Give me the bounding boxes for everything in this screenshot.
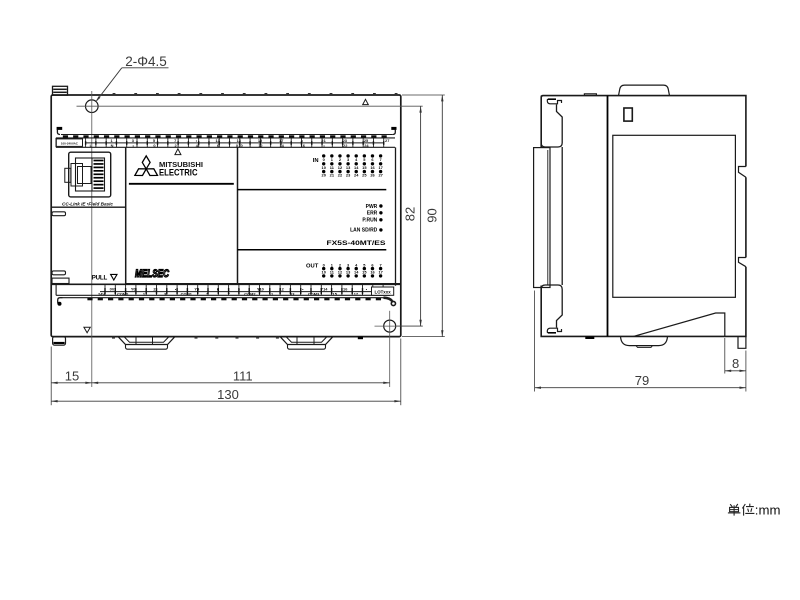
svg-text:COM0: COM0	[117, 292, 128, 297]
svg-text:14: 14	[354, 165, 359, 170]
svg-text:6: 6	[371, 157, 374, 162]
svg-text:22: 22	[338, 173, 343, 178]
svg-text:LOTxxx: LOTxxx	[375, 290, 392, 295]
svg-text:16: 16	[370, 165, 375, 170]
svg-text:17: 17	[378, 165, 382, 170]
svg-text:79: 79	[635, 373, 649, 388]
svg-text:Y0: Y0	[131, 286, 136, 291]
svg-text:10: 10	[322, 270, 326, 275]
svg-text:IN: IN	[313, 158, 319, 164]
svg-text:15: 15	[362, 270, 367, 275]
svg-text:6: 6	[371, 262, 374, 267]
svg-text:130: 130	[217, 387, 239, 402]
svg-text:11: 11	[269, 292, 274, 297]
svg-text:4: 4	[355, 157, 358, 162]
svg-text:COM1: COM1	[181, 292, 193, 297]
svg-text:13: 13	[346, 165, 351, 170]
svg-text:26: 26	[370, 173, 375, 178]
svg-text:15: 15	[362, 165, 367, 170]
svg-text:24: 24	[354, 173, 359, 178]
svg-text:1: 1	[331, 262, 334, 267]
svg-text:16: 16	[343, 286, 348, 291]
svg-text:16: 16	[370, 270, 375, 275]
svg-text:23: 23	[346, 173, 351, 178]
svg-text:ELECTRIC: ELECTRIC	[159, 168, 198, 178]
svg-text:12: 12	[338, 165, 343, 170]
svg-text:11: 11	[330, 165, 335, 170]
svg-text:12: 12	[279, 286, 284, 291]
svg-text:15: 15	[333, 292, 338, 297]
svg-text:100-240VAC: 100-240VAC	[61, 142, 79, 146]
svg-text:27: 27	[378, 173, 382, 178]
svg-text:PULL: PULL	[92, 275, 108, 282]
svg-text:P.RUN: P.RUN	[362, 218, 377, 224]
svg-text:3: 3	[347, 262, 350, 267]
svg-text:21: 21	[330, 173, 335, 178]
svg-text:MELSEC: MELSEC	[135, 268, 169, 280]
svg-text:0V: 0V	[110, 286, 115, 291]
svg-text:•: •	[302, 286, 304, 291]
svg-text:2: 2	[339, 157, 342, 162]
svg-text:7: 7	[380, 262, 382, 267]
svg-text:2: 2	[339, 262, 342, 267]
svg-text:111: 111	[233, 368, 253, 383]
svg-text:CC-Link IE •Field Basic: CC-Link IE •Field Basic	[62, 201, 114, 206]
svg-text:N: N	[111, 143, 114, 148]
svg-text:1: 1	[143, 292, 146, 297]
svg-text:•: •	[239, 286, 241, 291]
svg-text:Y4: Y4	[194, 286, 200, 291]
svg-text:0: 0	[323, 262, 325, 267]
svg-text:14: 14	[354, 270, 359, 275]
svg-text:FX5S-40MT/ES: FX5S-40MT/ES	[327, 241, 386, 247]
svg-text:OUT: OUT	[306, 263, 319, 269]
svg-text:5: 5	[363, 157, 366, 162]
svg-text:17: 17	[354, 292, 358, 297]
svg-text:12: 12	[338, 270, 343, 275]
svg-text:1: 1	[331, 157, 334, 162]
svg-text:LAN SD/RD: LAN SD/RD	[350, 228, 378, 234]
svg-text:2-Φ4.5: 2-Φ4.5	[125, 54, 167, 69]
svg-text:0: 0	[323, 157, 325, 162]
svg-text:10: 10	[322, 165, 326, 170]
svg-text:5: 5	[363, 262, 366, 267]
svg-text:COM2: COM2	[244, 292, 256, 297]
svg-text:27: 27	[385, 138, 389, 143]
svg-text:ERR: ERR	[367, 211, 378, 217]
svg-text:7: 7	[228, 292, 230, 297]
svg-text:13: 13	[290, 292, 295, 297]
svg-text::mm: :mm	[755, 503, 781, 518]
svg-text:25: 25	[362, 173, 367, 178]
svg-text:90: 90	[424, 208, 439, 222]
svg-text:•: •	[366, 286, 368, 291]
svg-text:82: 82	[402, 207, 417, 221]
svg-text:3: 3	[347, 157, 350, 162]
svg-text:11: 11	[330, 270, 335, 275]
svg-text:4: 4	[355, 262, 358, 267]
svg-text:Y14: Y14	[321, 286, 329, 291]
svg-text:X10: X10	[236, 143, 243, 148]
svg-text:8: 8	[732, 356, 739, 371]
svg-text:20: 20	[322, 173, 326, 178]
svg-text:24V: 24V	[98, 292, 105, 297]
svg-text:Y10: Y10	[257, 286, 264, 291]
svg-text:PWR: PWR	[366, 204, 378, 210]
svg-text:17: 17	[378, 270, 382, 275]
svg-text:15: 15	[65, 368, 79, 383]
svg-text:6: 6	[217, 286, 220, 291]
svg-text:COM3: COM3	[308, 292, 320, 297]
svg-text:7: 7	[380, 157, 382, 162]
svg-text:0: 0	[153, 143, 155, 148]
svg-text:13: 13	[346, 270, 351, 275]
svg-text:5: 5	[206, 292, 209, 297]
